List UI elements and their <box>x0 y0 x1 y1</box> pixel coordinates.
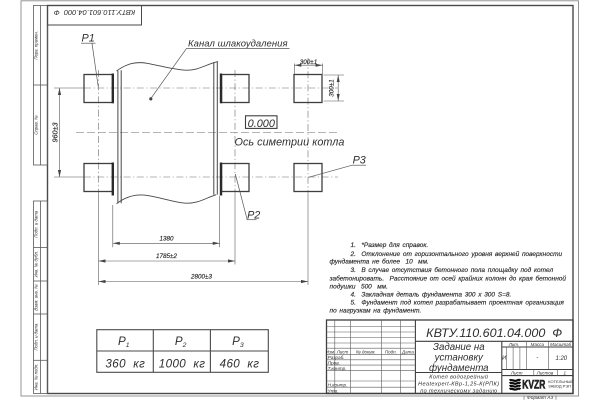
svg-text:КВТУ.110.601.04.000 Ф: КВТУ.110.601.04.000 Ф <box>426 326 562 340</box>
svg-text:фундамента: фундамента <box>429 363 489 374</box>
svg-text:5. Фундамент под котел разраб: 5. Фундамент под котел разрабатывает про… <box>351 298 565 306</box>
svg-text:2. Отклонение от горизонтальн: 2. Отклонение от горизонтального уровня … <box>350 250 563 258</box>
svg-text:300±1: 300±1 <box>329 79 336 96</box>
svg-text:460 кг: 460 кг <box>220 358 260 371</box>
svg-text:0.000: 0.000 <box>248 118 275 130</box>
svg-text:960±3: 960±3 <box>50 123 59 143</box>
svg-text:KVZR: KVZR <box>522 378 545 392</box>
svg-text:Дата: Дата <box>401 349 414 354</box>
svg-text:Подп. и дата: Подп. и дата <box>34 210 39 238</box>
svg-text:подушки 500 мм.: подушки 500 мм. <box>330 282 389 290</box>
svg-text:Задание на: Задание на <box>433 342 485 353</box>
svg-text:по нагрузкам на фундамент.: по нагрузкам на фундамент. <box>330 306 422 314</box>
svg-text:Канал шлакоудаления: Канал шлакоудаления <box>188 38 288 49</box>
svg-text:КВТУ.110.601.04.000 Ф: КВТУ.110.601.04.000 Ф <box>54 8 136 17</box>
svg-text:Heatexpert-КВр-1,25-К(РПК): Heatexpert-КВр-1,25-К(РПК) <box>418 381 499 387</box>
svg-text:Инв. № подл.: Инв. № подл. <box>34 364 39 391</box>
svg-text:300±1: 300±1 <box>300 59 317 66</box>
svg-text:Н.контр.: Н.контр. <box>328 382 348 387</box>
svg-text:360 кг: 360 кг <box>105 358 145 371</box>
svg-text:1380: 1380 <box>159 236 174 243</box>
svg-text:1785±2: 1785±2 <box>156 253 177 260</box>
svg-text:Пров.: Пров. <box>328 361 340 366</box>
svg-text:Т.контр.: Т.контр. <box>328 366 347 371</box>
svg-text:1000 кг: 1000 кг <box>159 358 206 371</box>
svg-text:Лист: Лист <box>510 370 523 375</box>
svg-text:3. В случае отсутствия бетонн: 3. В случае отсутствия бетонного пола пл… <box>351 266 554 274</box>
svg-text:1. *Размер для справок.: 1. *Размер для справок. <box>351 241 429 249</box>
svg-text:забетонировать. Расстояние от: забетонировать. Расстояние от осей крайн… <box>329 274 567 282</box>
svg-text:№ докум.: № докум. <box>356 349 376 354</box>
svg-text:-: - <box>536 355 538 361</box>
svg-text:Взам. инв. №: Взам. инв. № <box>34 284 39 311</box>
svg-text:установку: установку <box>434 352 484 363</box>
svg-text:фундамента не более 10 мм.: фундамента не более 10 мм. <box>330 257 430 265</box>
svg-text:Масштаб: Масштаб <box>550 342 571 347</box>
svg-text:Ось симетрии котла: Ось симетрии котла <box>235 136 345 148</box>
svg-text:Формат А3: Формат А3 <box>527 395 554 400</box>
svg-text:Р3: Р3 <box>353 155 366 167</box>
svg-text:2800±3: 2800±3 <box>190 274 212 281</box>
svg-text:по техническому заданию: по техническому заданию <box>420 388 497 394</box>
svg-text:Разраб.: Разраб. <box>328 355 345 360</box>
svg-text:1:20: 1:20 <box>555 356 567 362</box>
svg-text:Р1: Р1 <box>82 33 95 45</box>
svg-text:Справ. №: Справ. № <box>34 115 39 135</box>
svg-text:ЗАВОД РЭП: ЗАВОД РЭП <box>548 384 571 389</box>
svg-text:Лист: Лист <box>336 349 349 354</box>
svg-text:Перв. примен.: Перв. примен. <box>34 31 39 60</box>
svg-text:Утв.: Утв. <box>328 388 339 393</box>
svg-text:4. Закладная деталь фундамент: 4. Закладная деталь фундамента 300 х 300… <box>351 290 512 298</box>
svg-text:Листов: Листов <box>536 370 554 375</box>
svg-text:Подп. и дата: Подп. и дата <box>34 323 39 351</box>
svg-text:Инв. № дубл.: Инв. № дубл. <box>34 251 39 277</box>
svg-text:Изм.: Изм. <box>326 349 336 354</box>
svg-text:Масса: Масса <box>531 342 545 347</box>
svg-text:Котел водогрейный: Котел водогрейный <box>429 374 488 381</box>
svg-text:Подп.: Подп. <box>385 349 397 354</box>
svg-text:Лит.: Лит. <box>508 342 520 347</box>
